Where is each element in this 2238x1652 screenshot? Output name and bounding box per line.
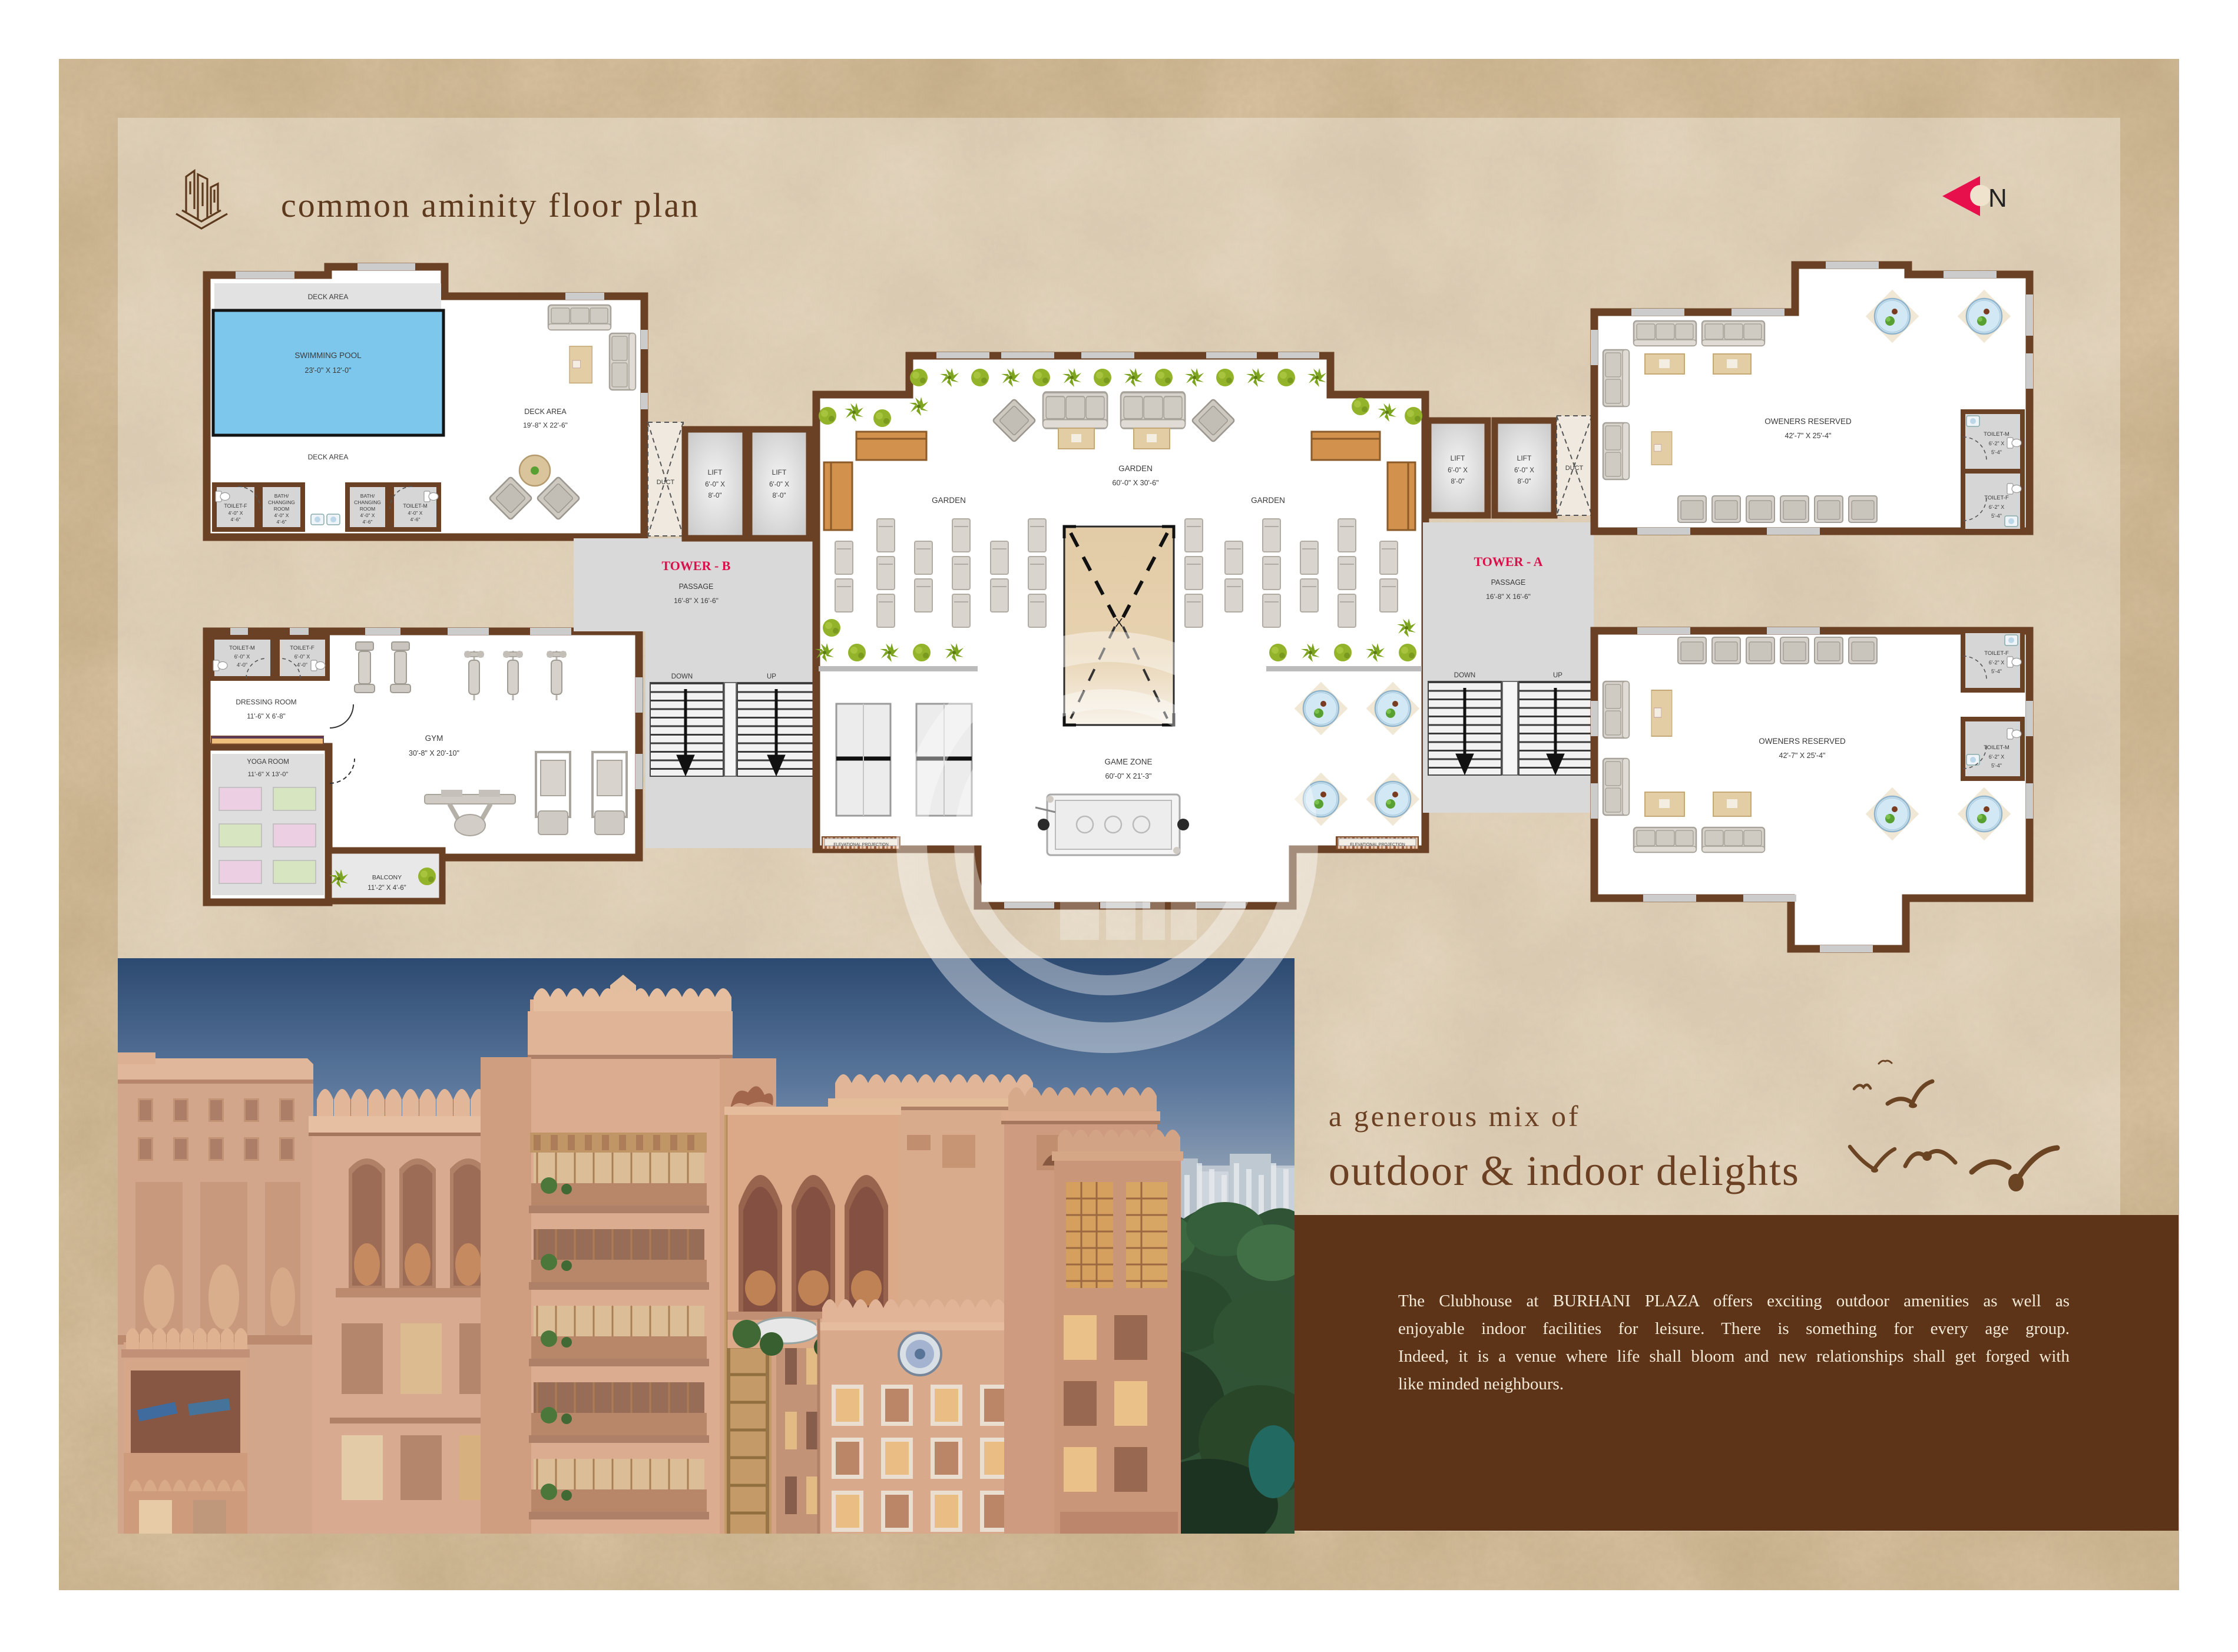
svg-text:TOILET-F: TOILET-F — [1984, 495, 2009, 501]
svg-text:ROOM: ROOM — [360, 506, 375, 512]
svg-text:TOWER - A: TOWER - A — [1474, 554, 1543, 569]
svg-text:6'-0" X: 6'-0" X — [234, 654, 250, 660]
svg-text:LIFT: LIFT — [1451, 454, 1465, 462]
svg-text:UP: UP — [767, 673, 776, 680]
svg-text:N: N — [1988, 184, 2007, 213]
svg-text:outdoor & indoor delights: outdoor & indoor delights — [1329, 1147, 1800, 1194]
svg-text:19'-8" X 22'-6": 19'-8" X 22'-6" — [523, 421, 568, 429]
svg-text:5'-4": 5'-4" — [1991, 668, 2002, 674]
svg-text:ELEVATIONAL PROJECTION: ELEVATIONAL PROJECTION — [833, 843, 889, 847]
svg-text:6'-0" X: 6'-0" X — [769, 481, 789, 488]
svg-text:6'-2" X: 6'-2" X — [1989, 504, 2004, 510]
svg-text:42'-7" X 25'-4": 42'-7" X 25'-4" — [1779, 751, 1826, 760]
svg-text:YOGA ROOM: YOGA ROOM — [247, 759, 289, 766]
svg-text:GARDEN: GARDEN — [1251, 496, 1285, 505]
svg-text:16'-8" X 16'-6": 16'-8" X 16'-6" — [1486, 592, 1531, 601]
svg-text:5'-4": 5'-4" — [1991, 513, 2002, 519]
svg-text:4'-6": 4'-6" — [410, 517, 421, 522]
svg-text:GARDEN: GARDEN — [1118, 464, 1153, 473]
svg-text:TOWER - B: TOWER - B — [662, 558, 731, 573]
svg-text:PASSAGE: PASSAGE — [679, 582, 714, 591]
svg-text:OWENERS RESERVED: OWENERS RESERVED — [1759, 737, 1846, 746]
svg-text:TOILET-F: TOILET-F — [290, 645, 314, 651]
svg-text:DECK AREA: DECK AREA — [308, 293, 349, 301]
svg-text:ROOM: ROOM — [274, 506, 289, 512]
svg-text:DUCT: DUCT — [1565, 465, 1584, 472]
svg-text:DECK AREA: DECK AREA — [308, 453, 349, 461]
svg-text:CHANGING: CHANGING — [354, 499, 381, 505]
svg-text:UP: UP — [1553, 672, 1562, 679]
svg-text:TOILET-M: TOILET-M — [1984, 431, 2009, 438]
svg-text:8'-0": 8'-0" — [709, 492, 722, 499]
svg-text:11'-2" X 4'-6": 11'-2" X 4'-6" — [368, 885, 406, 892]
svg-text:6'-2" X: 6'-2" X — [1989, 754, 2004, 760]
svg-text:6'-0" X: 6'-0" X — [294, 654, 310, 660]
svg-text:BATH/: BATH/ — [274, 493, 289, 499]
svg-text:DUCT: DUCT — [657, 479, 675, 486]
svg-text:common aminity floor plan: common aminity floor plan — [281, 186, 700, 224]
svg-text:6'-0" X: 6'-0" X — [1448, 467, 1468, 474]
svg-text:4'-0" X: 4'-0" X — [408, 510, 423, 516]
svg-text:8'-0": 8'-0" — [1518, 478, 1531, 485]
svg-text:LIFT: LIFT — [708, 468, 723, 476]
svg-text:TOILET-M: TOILET-M — [403, 503, 427, 509]
svg-text:TOILET-M: TOILET-M — [229, 645, 255, 651]
svg-text:TOILET-M: TOILET-M — [1984, 744, 2009, 751]
svg-text:4'-0" X: 4'-0" X — [274, 512, 289, 518]
svg-text:11'-6" X 13'-0": 11'-6" X 13'-0" — [248, 771, 289, 778]
svg-text:30'-8" X 20'-10": 30'-8" X 20'-10" — [409, 749, 459, 757]
svg-text:5'-4": 5'-4" — [1991, 449, 2002, 455]
svg-text:BATH/: BATH/ — [360, 493, 375, 499]
svg-text:X: X — [1115, 617, 1123, 630]
svg-text:4'-6": 4'-6" — [231, 517, 241, 522]
svg-text:a generous mix of: a generous mix of — [1329, 1100, 1581, 1133]
svg-text:16'-8" X 16'-6": 16'-8" X 16'-6" — [674, 597, 719, 605]
svg-text:8'-0": 8'-0" — [1451, 478, 1465, 485]
svg-text:DRESSING ROOM: DRESSING ROOM — [236, 698, 296, 706]
svg-text:CHANGING: CHANGING — [268, 499, 295, 505]
svg-text:BALCONY: BALCONY — [372, 874, 402, 881]
svg-text:4'-0": 4'-0" — [237, 662, 247, 668]
svg-text:23'-0" X 12'-0": 23'-0" X 12'-0" — [305, 366, 352, 375]
svg-text:ELEVATIONAL PROJECTION: ELEVATIONAL PROJECTION — [1350, 843, 1405, 847]
svg-text:TOILET-F: TOILET-F — [224, 503, 247, 509]
svg-text:5'-4": 5'-4" — [1991, 763, 2002, 769]
svg-text:4'-0" X: 4'-0" X — [360, 512, 375, 518]
svg-text:6'-0" X: 6'-0" X — [1514, 467, 1534, 474]
svg-text:11'-6" X 6'-8": 11'-6" X 6'-8" — [247, 713, 285, 720]
svg-text:8'-0": 8'-0" — [773, 492, 786, 499]
svg-text:GYM: GYM — [425, 734, 443, 743]
svg-text:LIFT: LIFT — [772, 468, 787, 476]
svg-text:6'-0" X: 6'-0" X — [705, 481, 725, 488]
svg-text:TOILET-F: TOILET-F — [1984, 650, 2009, 657]
svg-text:OWENERS RESERVED: OWENERS RESERVED — [1764, 417, 1852, 426]
svg-text:6'-2" X: 6'-2" X — [1989, 660, 2004, 666]
svg-text:GARDEN: GARDEN — [932, 496, 966, 505]
svg-text:LIFT: LIFT — [1517, 454, 1532, 462]
svg-text:DECK AREA: DECK AREA — [524, 408, 567, 416]
svg-text:4'-0": 4'-0" — [297, 662, 307, 668]
svg-text:60'-0" X 30'-6": 60'-0" X 30'-6" — [1113, 479, 1159, 487]
svg-text:SWIMMING POOL: SWIMMING POOL — [294, 351, 362, 360]
svg-text:6'-2" X: 6'-2" X — [1989, 441, 2004, 446]
svg-text:42'-7" X 25'-4": 42'-7" X 25'-4" — [1785, 432, 1832, 440]
svg-text:GAME ZONE: GAME ZONE — [1104, 757, 1152, 766]
svg-text:60'-0" X 21'-3": 60'-0" X 21'-3" — [1105, 772, 1152, 780]
svg-text:DOWN: DOWN — [671, 673, 693, 680]
svg-text:PASSAGE: PASSAGE — [1491, 578, 1526, 587]
svg-text:4'-6": 4'-6" — [277, 519, 287, 525]
svg-text:4'-6": 4'-6" — [363, 519, 373, 525]
svg-text:4'-0" X: 4'-0" X — [229, 510, 243, 516]
svg-text:DOWN: DOWN — [1454, 672, 1475, 679]
